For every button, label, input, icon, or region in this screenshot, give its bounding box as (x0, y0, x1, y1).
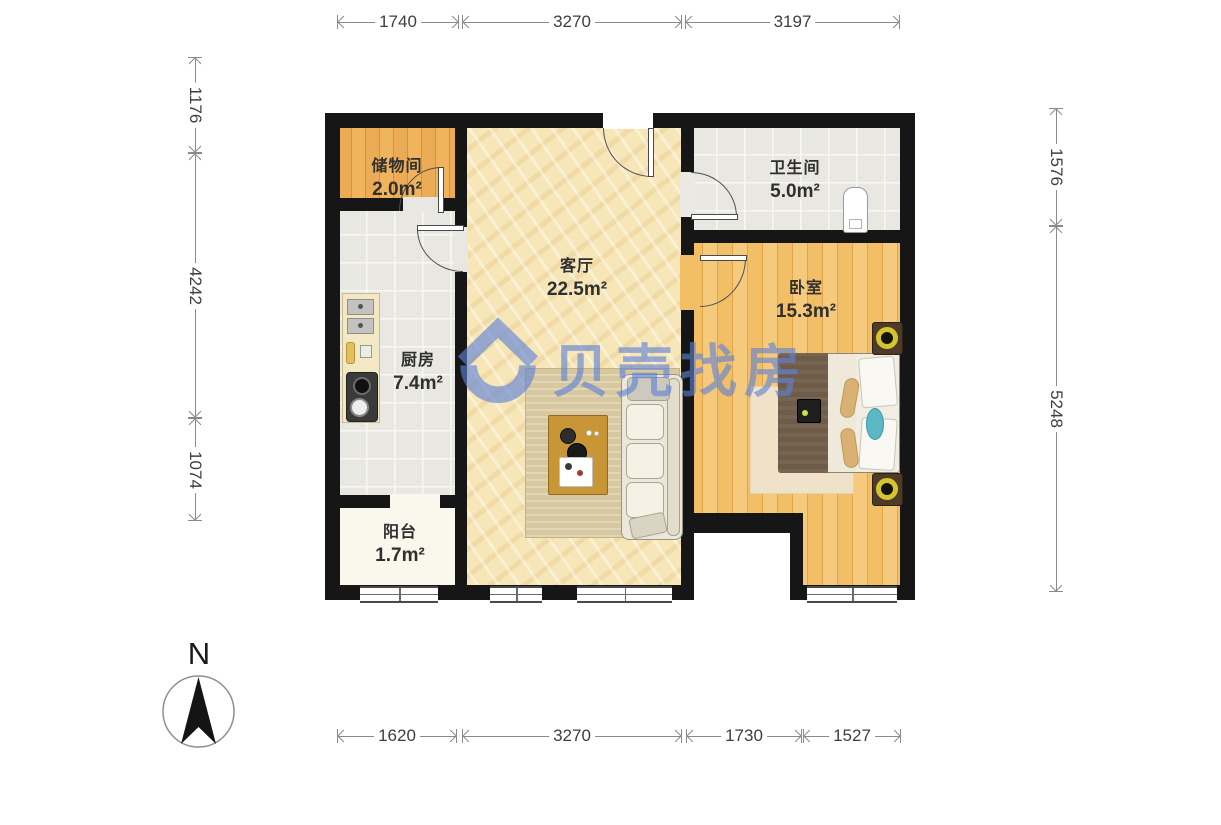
sofa-back (667, 378, 680, 536)
dimension-top-1: 1740 (337, 15, 459, 29)
kitchen-board (360, 345, 372, 358)
bedside-lamp (876, 478, 898, 500)
wall-right (900, 113, 915, 600)
dimension-value: 3270 (549, 726, 595, 746)
sofa-armrest (627, 377, 670, 401)
north-label: N (184, 636, 214, 672)
entrance-opening (603, 112, 653, 129)
dimension-bottom-3: 1730 (686, 729, 802, 743)
cooktop-burner (353, 377, 371, 395)
sofa-cushion (626, 443, 664, 479)
dimension-left-3: 1074 (188, 418, 202, 521)
balcony-window (360, 586, 438, 603)
tray-item (565, 463, 572, 470)
bed-accent-pillow (866, 408, 884, 440)
exterior-recess (694, 533, 790, 603)
bedroom-door-leaf (700, 255, 747, 261)
living-room-window-2 (577, 586, 672, 603)
wall-notch-right (790, 533, 803, 600)
balcony-floor (338, 502, 458, 593)
bed-tray (797, 399, 821, 423)
wall-kitchen-living (455, 113, 467, 600)
sink-drain (358, 323, 363, 328)
dimension-value: 1730 (721, 726, 767, 746)
dimension-right-2: 5248 (1049, 226, 1063, 592)
dimension-bottom-1: 1620 (337, 729, 457, 743)
dimension-top-2: 3270 (462, 15, 682, 29)
table-cup (594, 431, 599, 436)
bed-tray-dot (802, 410, 808, 416)
dimension-bottom-2: 3270 (462, 729, 682, 743)
kettle (350, 398, 369, 417)
sofa-cushion (626, 404, 664, 440)
bathroom-door-leaf (691, 214, 738, 220)
table-vase (560, 428, 576, 444)
north-arrow-icon (161, 674, 236, 749)
dimension-value: 5248 (1046, 386, 1066, 432)
sink-drain (358, 304, 363, 309)
dimension-value: 3197 (770, 12, 816, 32)
wall-bathroom-bottom (681, 230, 915, 243)
wall-notch-top (681, 513, 803, 533)
living-room-window-1 (490, 586, 542, 603)
kitchen-bottle (346, 342, 355, 364)
table-cup (586, 430, 592, 436)
wall-storage-bottom (325, 198, 467, 211)
dimension-top-3: 3197 (685, 15, 900, 29)
storage-door-leaf (438, 167, 444, 213)
dimension-value: 1576 (1046, 144, 1066, 190)
dimension-value: 1176 (185, 83, 205, 128)
kitchen-door-leaf (417, 225, 464, 231)
compass (161, 674, 236, 749)
dimension-value: 1527 (829, 726, 875, 746)
dimension-value: 1740 (375, 12, 421, 32)
table-tray (559, 457, 593, 487)
dimension-value: 1074 (185, 447, 205, 493)
dimension-left-1: 1176 (188, 57, 202, 153)
dimension-left-2: 4242 (188, 153, 202, 418)
dimension-value: 3270 (549, 12, 595, 32)
wall-left (325, 113, 340, 600)
dimension-value: 1620 (374, 726, 420, 746)
dimension-right-1: 1576 (1049, 108, 1063, 226)
bedroom-window (807, 586, 897, 603)
water-heater-panel (849, 219, 862, 229)
entrance-door-leaf (648, 128, 654, 177)
dimension-value: 4242 (185, 263, 205, 309)
bathroom-floor (688, 126, 910, 238)
bed-pillow (858, 356, 898, 409)
balcony-opening (390, 494, 440, 509)
tray-item (577, 470, 583, 476)
bedside-lamp (876, 327, 898, 349)
bedroom-door-opening (680, 255, 695, 310)
floorplan-canvas: 贝壳找房 储物间 2.0m² 卫生间 5.0m² 客厅 22.5m² 卧室 15… (0, 0, 1221, 825)
dimension-bottom-4: 1527 (803, 729, 901, 743)
